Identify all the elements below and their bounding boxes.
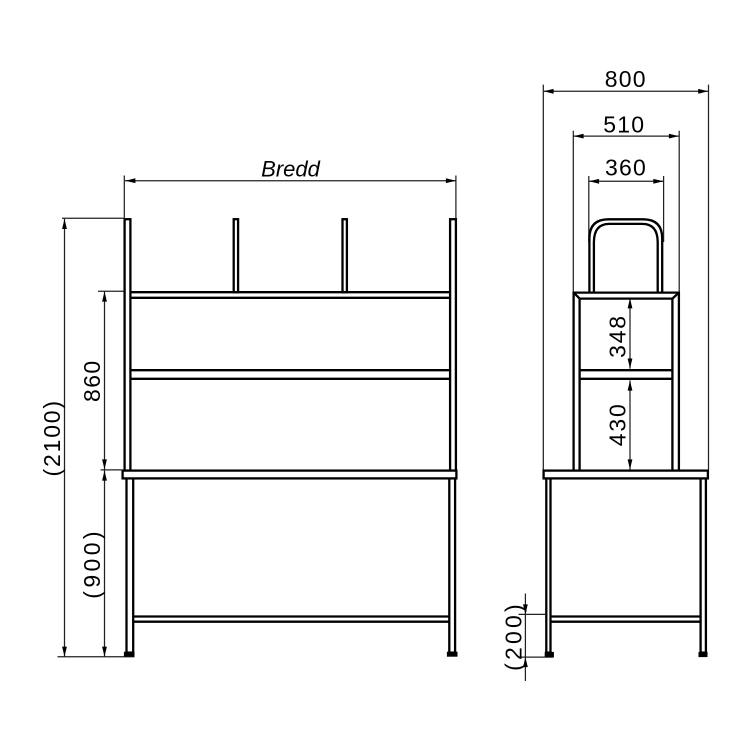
svg-text:510: 510 bbox=[603, 111, 645, 137]
svg-text:860: 860 bbox=[79, 359, 105, 402]
svg-text:(2100): (2100) bbox=[39, 399, 65, 476]
svg-text:430: 430 bbox=[605, 402, 631, 446]
svg-text:800: 800 bbox=[605, 66, 647, 92]
svg-text:348: 348 bbox=[605, 314, 631, 358]
svg-text:360: 360 bbox=[605, 155, 647, 181]
svg-text:(900): (900) bbox=[79, 528, 105, 599]
svg-text:(200): (200) bbox=[501, 601, 527, 671]
svg-text:Bredd: Bredd bbox=[261, 156, 320, 181]
